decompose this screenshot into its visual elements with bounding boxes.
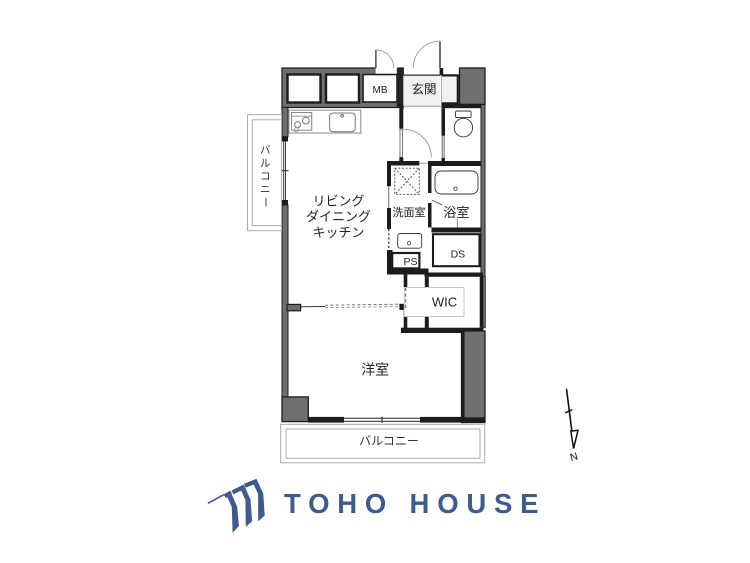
svg-text:玄関: 玄関 [411,82,436,97]
svg-text:ダイニング: ダイニング [306,209,371,224]
svg-text:MB: MB [373,85,388,96]
svg-text:バルコニー: バルコニー [359,434,419,448]
svg-text:コ: コ [260,170,271,182]
svg-text:ー: ー [259,197,271,208]
svg-text:WIC: WIC [432,294,457,309]
svg-text:TOHO HOUSE: TOHO HOUSE [284,488,539,519]
svg-text:リビング: リビング [312,193,364,208]
svg-text:キッチン: キッチン [312,225,364,240]
svg-text:ル: ル [260,157,271,169]
svg-text:浴室: 浴室 [443,205,469,220]
svg-text:PS: PS [403,256,417,268]
svg-text:バ: バ [260,144,271,156]
svg-text:洗面室: 洗面室 [393,205,426,219]
svg-text:洋室: 洋室 [361,361,389,377]
svg-text:ニ: ニ [260,183,271,195]
svg-text:DS: DS [451,249,466,261]
